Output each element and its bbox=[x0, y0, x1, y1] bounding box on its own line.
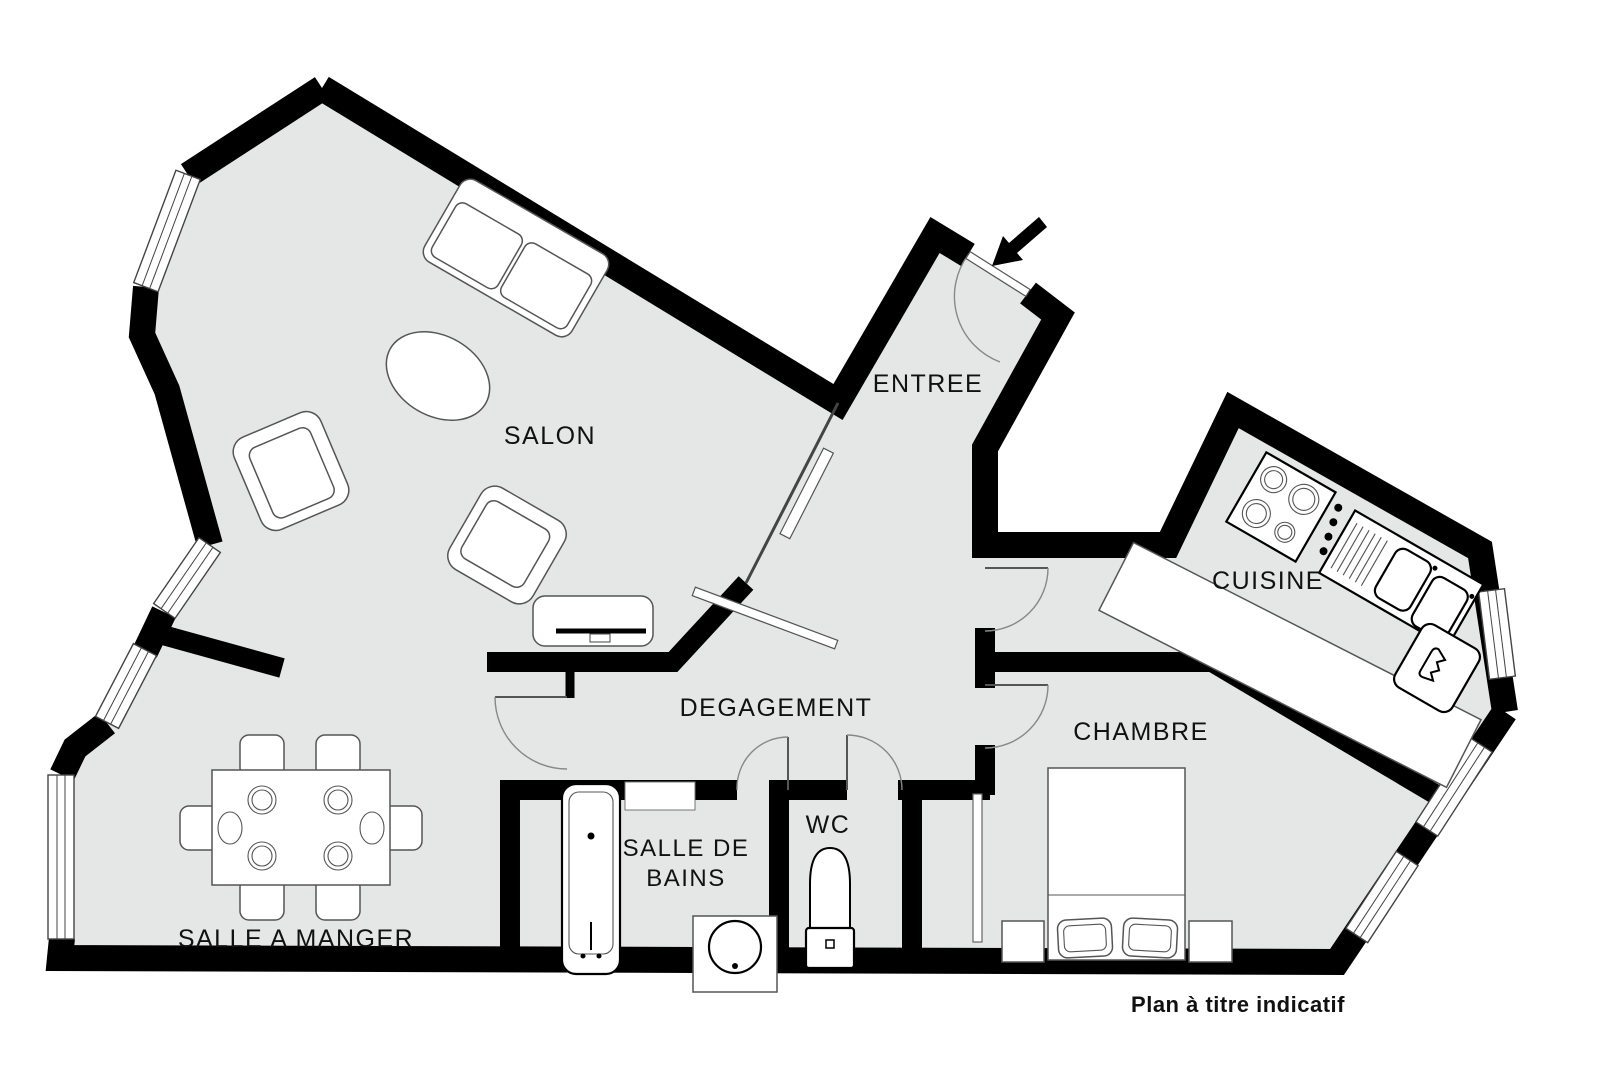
tv-console-icon bbox=[533, 596, 653, 646]
toilet-icon bbox=[806, 848, 854, 968]
floor-plan-page: SALON ENTREE CUISINE DEGAGEMENT CHAMBRE … bbox=[0, 0, 1620, 1080]
floor-plan-drawing: SALON ENTREE CUISINE DEGAGEMENT CHAMBRE … bbox=[0, 0, 1620, 1080]
label-salon: SALON bbox=[504, 422, 596, 450]
pillow bbox=[1122, 918, 1178, 959]
label-chambre: CHAMBRE bbox=[1073, 718, 1209, 746]
closet-front bbox=[973, 794, 982, 942]
nightstand bbox=[1002, 921, 1044, 962]
window-dining-lower bbox=[48, 775, 74, 939]
nightstand bbox=[1189, 921, 1232, 962]
label-salle-de-bains-1: SALLE DE bbox=[623, 835, 750, 862]
label-wc: WC bbox=[806, 811, 851, 839]
washbasin-icon bbox=[693, 916, 777, 992]
label-cuisine: CUISINE bbox=[1212, 567, 1324, 595]
bathroom-shelf bbox=[625, 782, 695, 810]
bathtub-icon bbox=[562, 784, 620, 974]
label-salle-de-bains-2: BAINS bbox=[646, 865, 726, 892]
label-degagement: DEGAGEMENT bbox=[680, 694, 873, 722]
pillow bbox=[1057, 918, 1113, 959]
dining-table-icon bbox=[212, 770, 390, 885]
label-entree: ENTREE bbox=[873, 370, 983, 398]
label-salle-a-manger: SALLE A MANGER bbox=[178, 925, 414, 953]
entrance-arrow-icon bbox=[992, 217, 1047, 266]
plan-caption: Plan à titre indicatif bbox=[1131, 992, 1345, 1017]
